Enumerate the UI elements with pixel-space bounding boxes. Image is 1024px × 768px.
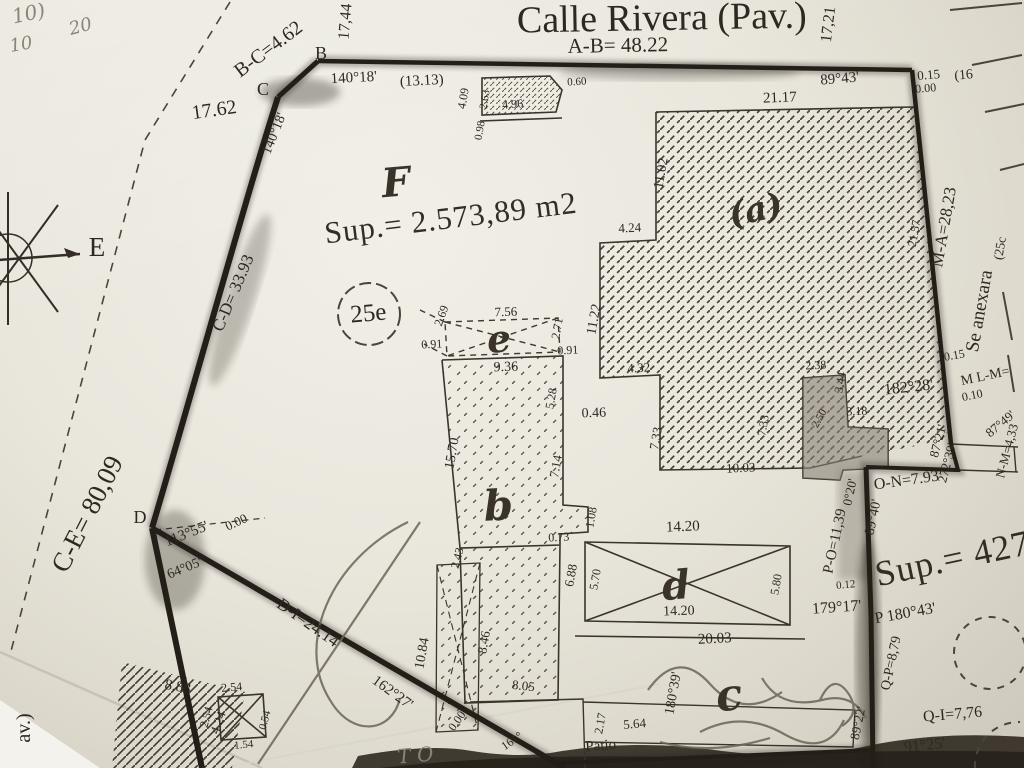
dim-0-98: 0.98 [472,119,487,141]
parcel-a-hatch [600,107,948,470]
dim-0-54: 0.54 [257,709,274,731]
dim-2-38: 2.38 [805,357,827,372]
dim-5-64: 5.64 [623,715,647,732]
note-t-o: T O [396,741,434,768]
dim-4-32: 4.32 [627,359,651,375]
dim-q-p: Q-P=8,79 [879,635,905,692]
parcel-letter-b: b [482,480,514,530]
dim-1-08: 1.08 [582,506,599,529]
note-10: 10 [8,32,34,57]
dim-0-91: 0.91 [557,342,579,357]
dim-2-69: 2.69 [431,303,451,328]
dim-8-05: 8.05 [511,677,535,694]
dim-d-i: D-I=24.14 [273,594,343,651]
dim-0-46: 0.46 [581,406,606,422]
area-annex: Sup.= 427 [871,522,1024,594]
vertex-d: D [134,507,147,527]
dim-5-70: 5.70 [586,568,603,591]
note-10: 10) [10,0,48,28]
dim-179-17: 179°17' [812,597,862,617]
dim-q-i: Q-I=7,76 [922,703,982,725]
dim-4-96: 4.96 [502,96,524,112]
dim-2-17: 2.17 [591,712,608,735]
dim-10-84: 10.84 [412,637,432,671]
left-street-fragment: av.) [13,713,35,742]
dim-14-20: 14.20 [666,518,700,535]
compass-east-label: E [89,232,106,262]
pencil-line [258,522,420,764]
dim-2-71: 2.71 [548,317,565,340]
dim-0-91: 0.91 [421,336,443,351]
dim-b-c: B-C=4.62 [230,16,307,81]
parcel-letter-e: e [485,315,513,362]
dim-21-17: 21.17 [763,89,798,106]
dim-140-18: 140°18' [330,69,377,87]
lot-circle-label: 25e [349,299,387,329]
dashed-circle [954,617,1024,689]
parcel-b-hatch [442,356,588,548]
vertex-p: P 180°43' [873,600,937,627]
adjacent-lot: (25c [990,235,1009,261]
dim-0-73: 0.73 [548,529,570,544]
dim-9-36: 9.36 [493,360,518,376]
dim-6-88: 6.88 [561,563,580,588]
dim-1-54: 1.54 [234,738,255,752]
neighbor-hatch-dashes [950,3,1024,392]
dim-89-43: 89°43' [820,69,860,88]
vertex-c: C [257,79,269,99]
dim-3-18: 3.18 [846,404,867,419]
dim-180-39: 180°39' [662,671,684,716]
dim-0-10: 0.10 [960,386,983,404]
compass-rose [0,192,80,325]
dim-a-b: A-B= 48.22 [567,32,668,58]
dim-c-e: C-E= 80,09 [45,451,129,577]
parcel-letter-d: d [660,561,692,610]
patio-label: Patio [585,737,617,755]
area-main: Sup.= 2.573,89 m2 [322,185,578,251]
dim-4-09: 4.09 [454,87,471,110]
vertex-b: B [315,43,327,63]
dim-17-62: 17.62 [190,96,238,124]
parcel-d-baseline [575,636,805,639]
dim-5-80: 5.80 [767,573,784,596]
adjacent-ref: (16 [954,67,974,84]
dim-2-54: 2.54 [221,679,243,695]
note-20: 20 [66,14,95,40]
dim-0-60: 0.60 [567,75,587,88]
scanned-survey-plan: Calle Rivera (Pav.)A-B= 48.2217,4417,21B… [0,0,1024,768]
dim-13-13: (13.13) [400,72,445,90]
annex-note: Se anexara [962,268,997,354]
dim-20-03: 20.03 [698,630,733,648]
pencil-squiggle [700,720,844,743]
dim-0-12: 0.12 [836,578,856,592]
parcel-letter-c: c [712,668,746,722]
dim-17-44: 17,44 [335,3,355,40]
dim-0-15: 0.15 [943,346,966,363]
survey-plan-drawing: Calle Rivera (Pav.)A-B= 48.2217,4417,21B… [0,0,1024,768]
dim-0-00: 0.00 [915,80,937,96]
pencil-squiggle [820,684,854,726]
dim-4-24: 4.24 [618,219,642,235]
parcel-letter-f: F [379,158,415,208]
dim-l-m: M L-M= [959,364,1011,389]
dim-10-03: 10.03 [726,459,756,476]
dim-0-00: 0.00 [223,510,250,533]
dim-17-21: 17,21 [818,6,839,44]
